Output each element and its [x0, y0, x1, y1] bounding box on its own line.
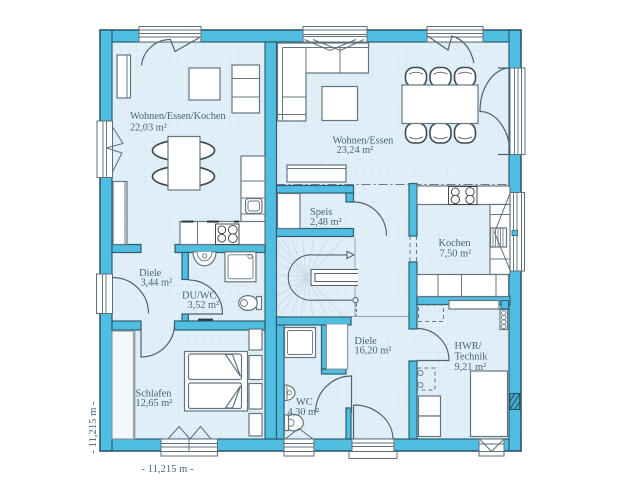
svg-text:16,20 m²: 16,20 m² — [355, 346, 392, 357]
svg-text:- 11,215 m -: - 11,215 m - — [88, 401, 99, 453]
svg-text:3,52 m²: 3,52 m² — [188, 300, 220, 311]
svg-text:7,50 m²: 7,50 m² — [440, 249, 472, 260]
svg-text:2,48 m²: 2,48 m² — [310, 217, 342, 228]
svg-text:4,30 m²: 4,30 m² — [288, 407, 320, 418]
svg-text:- 11,215 m -: - 11,215 m - — [142, 464, 194, 475]
svg-text:3,44 m²: 3,44 m² — [141, 278, 173, 289]
svg-text:22,03 m²: 22,03 m² — [130, 123, 167, 134]
svg-text:23,24 m²: 23,24 m² — [337, 145, 374, 156]
svg-text:Wohnen/Essen/Kochen: Wohnen/Essen/Kochen — [130, 111, 226, 122]
svg-text:9,21 m²: 9,21 m² — [455, 362, 487, 373]
svg-text:HWR/: HWR/ — [455, 341, 482, 352]
svg-text:12,65 m²: 12,65 m² — [136, 398, 173, 409]
svg-text:Technik: Technik — [455, 352, 489, 363]
svg-text:Kochen: Kochen — [439, 238, 472, 249]
